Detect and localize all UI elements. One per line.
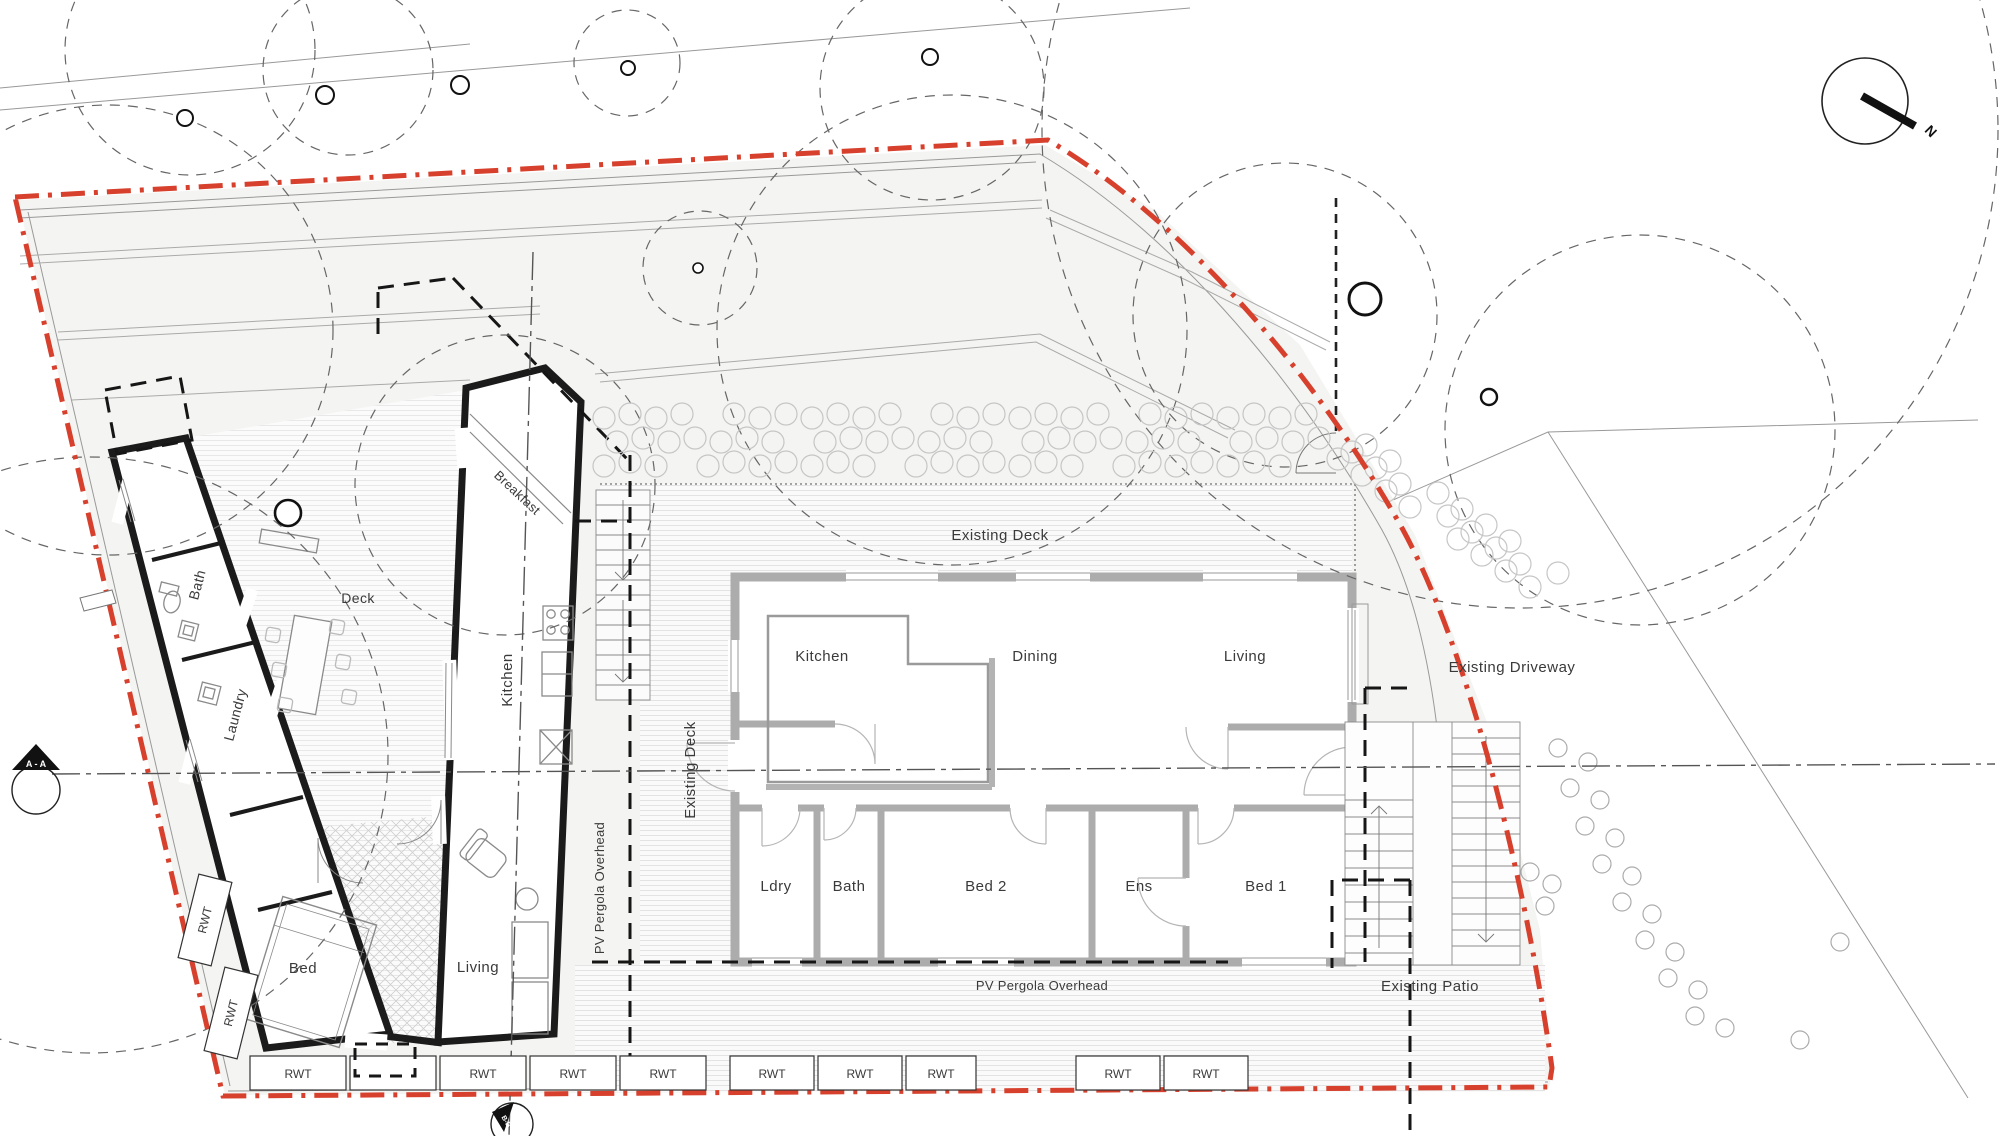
shrub <box>1519 576 1541 598</box>
north-arrow: N <box>1822 58 1940 144</box>
rwt-tank-label: RWT <box>927 1067 955 1081</box>
tree-trunk <box>693 263 703 273</box>
shrub <box>1509 553 1531 575</box>
rwt-tank-label: RWT <box>559 1067 587 1081</box>
stepping-stone <box>1606 829 1624 847</box>
stepping-stone <box>1623 867 1641 885</box>
label-existing-patio: Existing Patio <box>1381 978 1479 995</box>
rwt-tank-label: RWT <box>1192 1067 1220 1081</box>
shrub <box>1437 505 1459 527</box>
stepping-stone <box>1536 897 1554 915</box>
shrub <box>1499 530 1521 552</box>
stepping-stone <box>1561 779 1579 797</box>
label-house-bed2: Bed 2 <box>965 878 1007 895</box>
rwt-tank-label: RWT <box>649 1067 677 1081</box>
tree-trunk <box>1349 283 1381 315</box>
label-new-living: Living <box>457 959 499 976</box>
stepping-stone <box>1791 1031 1809 1049</box>
entry-stairs <box>1345 722 1520 965</box>
shrub <box>1399 496 1421 518</box>
shrub <box>1447 528 1469 550</box>
shrub <box>1389 473 1411 495</box>
rwt-tank-label: RWT <box>758 1067 786 1081</box>
section-marker-aa-label: A - A <box>26 759 47 769</box>
stepping-stone <box>1576 817 1594 835</box>
site-plan-canvas: RWTRWTRWTRWTRWTRWTRWTRWTRWT RWTRWT A - A… <box>0 0 2000 1136</box>
label-house-bed1: Bed 1 <box>1245 878 1287 895</box>
label-house-kitchen: Kitchen <box>795 648 849 665</box>
stepping-stone <box>1666 943 1684 961</box>
tree-trunk <box>275 500 301 526</box>
shrub <box>1485 537 1507 559</box>
tree-canopy <box>263 0 433 155</box>
label-existing-deck-top: Existing Deck <box>951 527 1048 544</box>
tree-trunk <box>177 110 193 126</box>
label-house-ens: Ens <box>1125 878 1152 895</box>
shrub <box>1379 450 1401 472</box>
label-house-bath: Bath <box>833 878 866 895</box>
stepping-stone <box>1659 969 1677 987</box>
label-pv-pergola-horizontal: PV Pergola Overhead <box>976 978 1108 993</box>
stepping-stone <box>1643 905 1661 923</box>
label-new-deck: Deck <box>341 590 375 606</box>
rwt-tank-label: RWT <box>846 1067 874 1081</box>
rwt-tank-row: RWTRWTRWTRWTRWTRWTRWTRWTRWT <box>250 1056 1248 1090</box>
section-marker-b: B-B <box>491 1102 533 1136</box>
shrub <box>1427 482 1449 504</box>
stepping-stone <box>1716 1019 1734 1037</box>
stepping-stone <box>1549 739 1567 757</box>
label-house-ldry: Ldry <box>760 878 791 895</box>
label-new-bed: Bed <box>289 960 317 977</box>
stepping-stones <box>1521 739 1849 1049</box>
rwt-tank-box <box>350 1056 436 1090</box>
tree-canopy <box>65 0 315 175</box>
shrub <box>1461 521 1483 543</box>
stepping-stone <box>1593 855 1611 873</box>
tree-trunk <box>316 86 334 104</box>
stepping-stone <box>1831 933 1849 951</box>
stepping-stone <box>1591 791 1609 809</box>
rwt-tank-label: RWT <box>284 1067 312 1081</box>
stepping-stone <box>1543 875 1561 893</box>
label-new-kitchen: Kitchen <box>499 653 516 707</box>
label-house-dining: Dining <box>1012 648 1058 665</box>
stepping-stone <box>1613 893 1631 911</box>
rwt-tank-label: RWT <box>469 1067 497 1081</box>
shrub <box>1547 562 1569 584</box>
label-existing-deck-side: Existing Deck <box>682 721 699 818</box>
north-label: N <box>1922 122 1940 140</box>
stepping-stone <box>1579 753 1597 771</box>
stepping-stone <box>1689 981 1707 999</box>
tree-trunk <box>621 61 635 75</box>
shrub <box>1475 514 1497 536</box>
tree-canopy <box>1445 235 1835 625</box>
section-marker-aa: A - A <box>12 744 60 814</box>
tree-trunk <box>1481 389 1497 405</box>
stepping-stone <box>1686 1007 1704 1025</box>
label-pv-pergola-vertical: PV Pergola Overhead <box>592 822 607 954</box>
label-house-living: Living <box>1224 648 1266 665</box>
rwt-tank-label: RWT <box>1104 1067 1132 1081</box>
stair-outline <box>1345 722 1520 965</box>
tree-trunk <box>451 76 469 94</box>
label-existing-driveway: Existing Driveway <box>1449 659 1576 676</box>
site-plan-page: RWTRWTRWTRWTRWTRWTRWTRWTRWT RWTRWT A - A… <box>0 0 2000 1136</box>
tree-trunk <box>922 49 938 65</box>
stepping-stone <box>1636 931 1654 949</box>
